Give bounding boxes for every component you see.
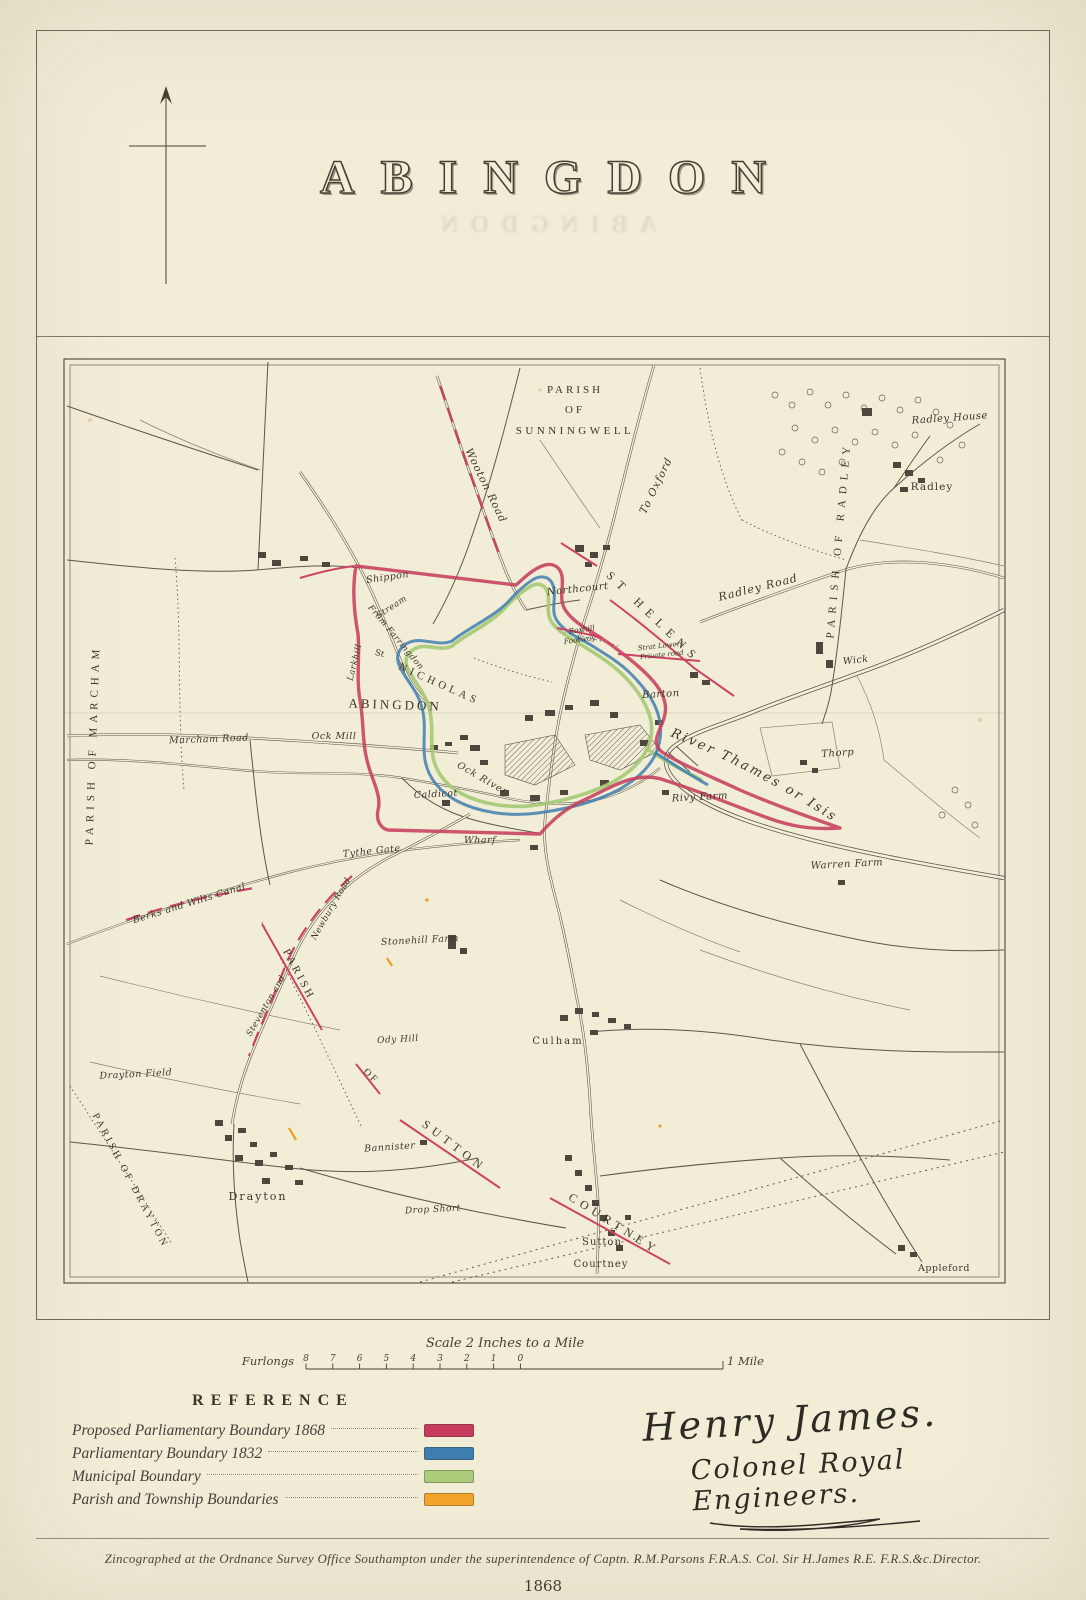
map-label-drayton-field: Drayton Field [98,1067,172,1082]
scale-tick-label-6: 6 [357,1354,363,1364]
legend-leader-line [268,1451,418,1452]
legend-item-label: Parish and Township Boundaries [72,1491,279,1509]
legend-item-0: Proposed Parliamentary Boundary 1868 [72,1419,474,1442]
legend-item-label: Municipal Boundary [72,1468,201,1486]
map-label-rivy-farm: Rivy Farm [671,791,729,805]
scale-furlongs-label: Furlongs [241,1354,294,1368]
scale-title: Scale 2 Inches to a Mile [426,1336,585,1351]
map-label-sutton-village: Sutton [582,1237,622,1248]
map-label-tythe-gate: Tythe Gate [342,843,401,860]
map-label-larkhill: Larkhill [345,643,364,683]
legend-leader-line [207,1474,418,1475]
map-label-wick: Wick [842,654,869,668]
map-label-to-oxford: To Oxford [637,455,675,515]
sheet-year: 1868 [0,1577,1086,1595]
imprint-text: Zincographed at the Ordnance Survey Offi… [0,1551,1086,1567]
scale-mile-label: 1 Mile [727,1354,764,1368]
north-arrow [100,72,230,287]
map-label-ock-mill: Ock Mill [312,731,357,742]
scale-tick-label-7: 7 [330,1354,336,1364]
map-label-wharf: Wharf [464,835,497,846]
map-label-parish-sunningwell-line3: SUNNINGWELL [516,425,635,437]
map-label-drop-short: Drop Short [404,1204,461,1217]
dotted-boundaries [70,368,846,1244]
map-label-stonehill-farm: Stonehill Farm [381,933,460,948]
scale-bar: Scale 2 Inches to a Mile Furlongs 1 Mile… [230,1326,775,1378]
map-label-parish-of-marcham: PARISH OF MARCHAM [84,644,103,845]
map-label-ody-hill: Ody Hill [377,1034,419,1046]
legend-rows: Proposed Parliamentary Boundary 1868Parl… [72,1419,474,1511]
map-labels: PARISHOFSUNNINGWELLPARISH OF RADLEYPARIS… [84,384,989,1274]
map-label-berks-and-wilts-canal: Berks and Wilts Canal [131,881,247,926]
scale-tick-label-4: 4 [409,1354,416,1364]
legend-color-swatch [424,1447,474,1460]
legend-item-2: Municipal Boundary [72,1465,474,1488]
foxing-spots [88,389,982,723]
legend-color-swatch [424,1424,474,1437]
orange-marks [289,898,662,1140]
map-label-bannister: Bannister [363,1140,417,1155]
map-label-warren-farm: Warren Farm [810,857,883,872]
map-label-parish-sunningwell-line2: OF [565,404,585,416]
map-label-appleford: Appleford [917,1263,970,1274]
scale-tick-label-8: 8 [303,1354,309,1364]
map-label-caldicot: Caldicot [414,788,458,801]
map-label-of-sutton: OF [361,1066,381,1086]
map-label-parish-of-radley: PARISH OF RADLEY [824,440,853,639]
map-frame [64,359,1005,1283]
map-label-courtney-village: Courtney [574,1259,629,1270]
map-canvas: PARISHOFSUNNINGWELLPARISH OF RADLEYPARIS… [60,355,1010,1290]
map-label-marcham-road: Marcham Road [168,733,249,747]
railway-dotted [420,1120,1004,1282]
signature-block: Henry James. Colonel Royal Engineers. [615,1385,1050,1521]
scale-tick-label-3: 3 [437,1354,443,1364]
legend-item-1: Parliamentary Boundary 1832 [72,1442,474,1465]
map-label-st-nicholas-st: St [374,648,386,660]
map-label-parish-of-drayton: PARISH OF DRAYTON [90,1111,171,1250]
roads [67,362,1004,1282]
canal [67,840,520,944]
legend-heading: REFERENCE [72,1392,474,1410]
map-label-from-farringdon: From Farringdon [365,603,426,673]
map-label-shippon: Shippon [366,569,410,586]
map-label-northcourt: Northcourt [545,581,609,599]
scale-tick-label-5: 5 [384,1354,390,1364]
map-label-newbury-road: Newbury Road [309,876,353,943]
scale-tick-label-0: 0 [518,1354,524,1364]
map-label-drayton: Drayton [229,1190,288,1203]
scale-ticks: 876543210 [303,1354,523,1369]
title-divider-line [36,336,1049,337]
legend-item-3: Parish and Township Boundaries [72,1488,474,1511]
rivers [67,368,1004,878]
map-label-steventon-and: Steventon and [245,974,288,1039]
scale-tick-label-1: 1 [491,1354,497,1364]
map-label-culham: Culham [532,1036,583,1047]
signature-flourish [700,1505,940,1535]
map-label-radley: Radley [911,481,954,493]
map-label-barton: Barton [641,688,680,701]
legend-leader-line [331,1428,418,1429]
buildings [215,408,925,1257]
legend-color-swatch [424,1493,474,1506]
legend-leader-line [285,1497,418,1498]
map-label-parish-sunningwell-line1: PARISH [547,384,603,396]
legend-item-label: Parliamentary Boundary 1832 [72,1445,262,1463]
legend-color-swatch [424,1470,474,1483]
reference-legend: REFERENCE Proposed Parliamentary Boundar… [72,1392,474,1511]
scale-tick-label-2: 2 [463,1354,470,1364]
imprint-divider-line [36,1538,1049,1539]
legend-item-label: Proposed Parliamentary Boundary 1868 [72,1422,325,1440]
map-sheet: ABINGDON ABINGDON [0,0,1086,1600]
map-label-wooton-road: Wooton Road [462,446,509,525]
map-label-radley-house: Radley House [910,410,988,426]
map-label-thorp: Thorp [821,747,855,760]
